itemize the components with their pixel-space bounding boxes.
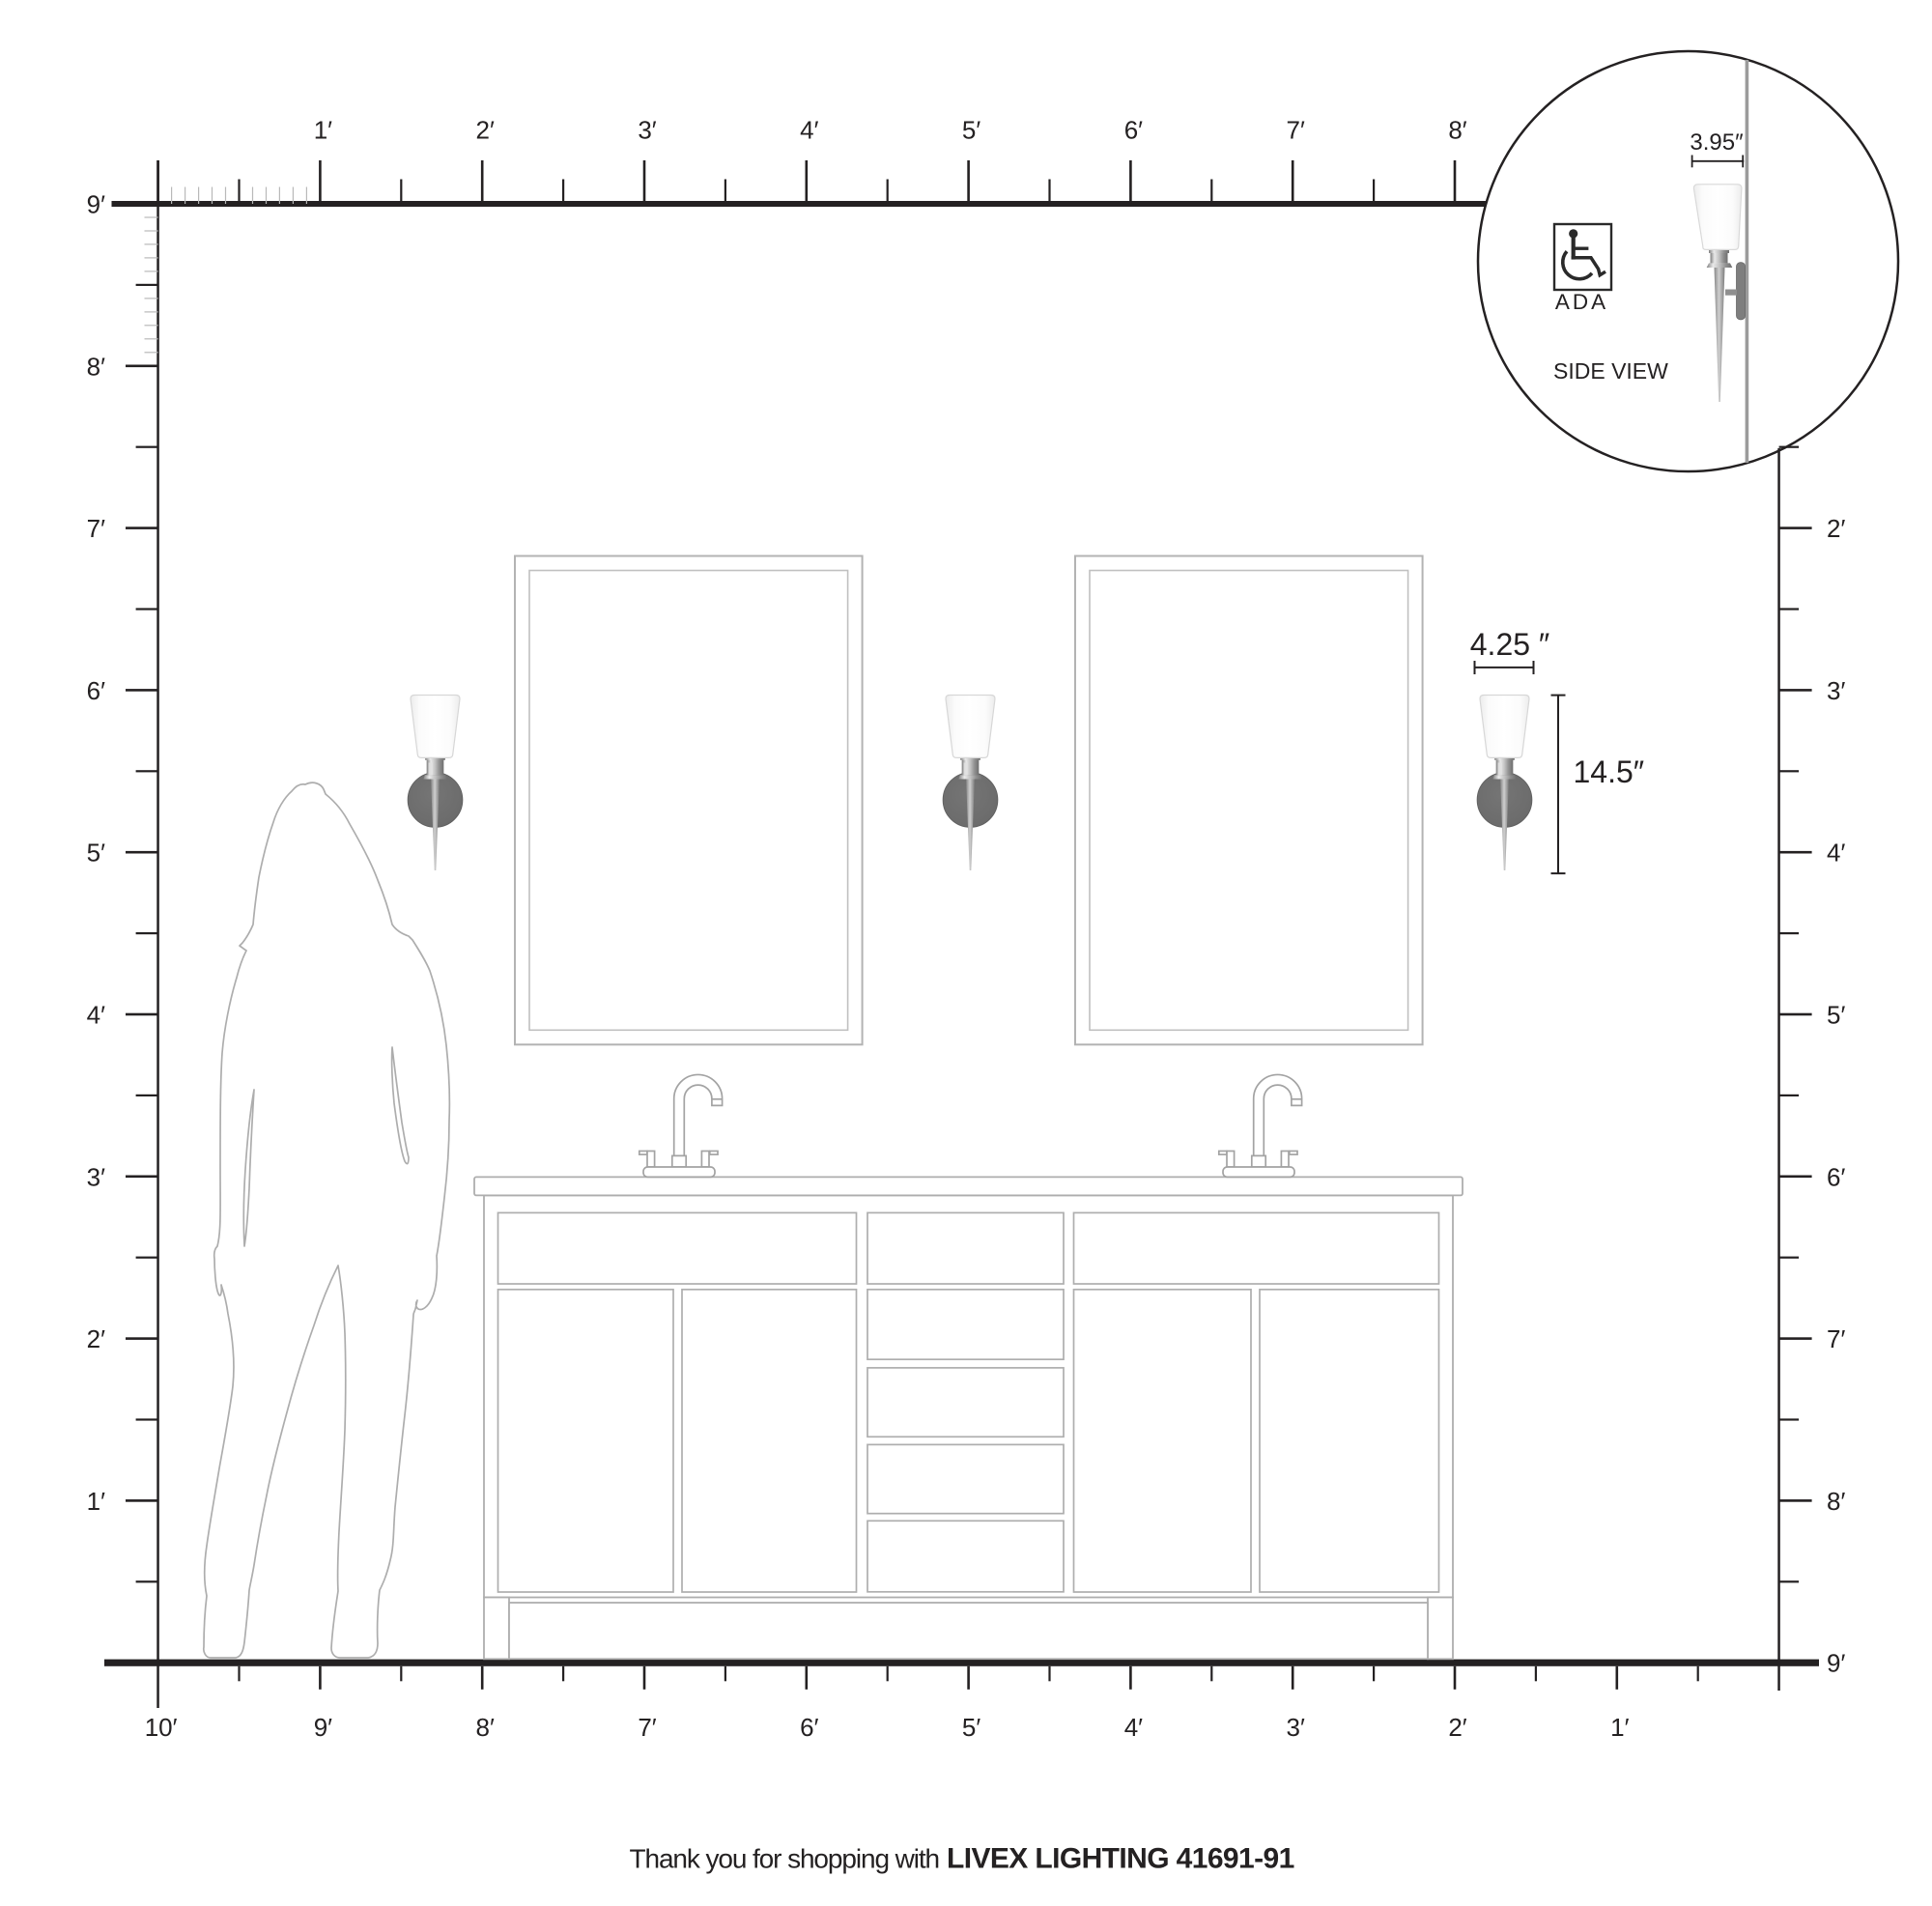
svg-text:4′: 4′ [800, 116, 818, 145]
svg-text:8′: 8′ [1448, 116, 1466, 145]
svg-text:9′: 9′ [1827, 1649, 1845, 1678]
svg-text:7′: 7′ [1827, 1324, 1845, 1353]
svg-text:6′: 6′ [800, 1713, 818, 1742]
svg-text:5′: 5′ [962, 1713, 980, 1742]
svg-text:4′: 4′ [1124, 1713, 1143, 1742]
svg-text:5′: 5′ [962, 116, 980, 145]
svg-text:2′: 2′ [1827, 514, 1845, 543]
svg-text:1′: 1′ [1610, 1713, 1629, 1742]
svg-text:2′: 2′ [476, 116, 495, 145]
svg-text:2′: 2′ [87, 1324, 105, 1353]
svg-text:6′: 6′ [1827, 1162, 1845, 1191]
svg-text:5′: 5′ [87, 839, 105, 868]
svg-text:LIVEX LIGHTING 41691-91: LIVEX LIGHTING 41691-91 [947, 1843, 1294, 1875]
svg-text:4.25 ″: 4.25 ″ [1470, 627, 1550, 662]
svg-text:1′: 1′ [87, 1487, 105, 1516]
svg-text:ADA: ADA [1555, 290, 1608, 314]
svg-text:3′: 3′ [1827, 676, 1845, 705]
svg-text:14.5″: 14.5″ [1574, 754, 1645, 789]
svg-text:8′: 8′ [476, 1713, 495, 1742]
svg-text:10′: 10′ [145, 1713, 178, 1742]
svg-text:SIDE VIEW: SIDE VIEW [1553, 358, 1668, 384]
svg-text:Thank you for shopping with: Thank you for shopping with [629, 1844, 939, 1874]
svg-text:7′: 7′ [1287, 116, 1305, 145]
svg-text:3.95″: 3.95″ [1690, 129, 1744, 156]
svg-text:7′: 7′ [638, 1713, 656, 1742]
svg-text:8′: 8′ [87, 352, 105, 381]
svg-text:5′: 5′ [1827, 1001, 1845, 1030]
svg-text:9′: 9′ [314, 1713, 332, 1742]
svg-text:6′: 6′ [1124, 116, 1143, 145]
svg-text:2′: 2′ [1448, 1713, 1466, 1742]
svg-text:1′: 1′ [314, 116, 332, 145]
svg-text:3′: 3′ [638, 116, 656, 145]
svg-text:8′: 8′ [1827, 1487, 1845, 1516]
svg-text:7′: 7′ [87, 514, 105, 543]
svg-text:6′: 6′ [87, 676, 105, 705]
svg-text:3′: 3′ [1287, 1713, 1305, 1742]
svg-text:3′: 3′ [87, 1162, 105, 1191]
svg-text:9′: 9′ [87, 190, 105, 219]
svg-text:4′: 4′ [1827, 839, 1845, 868]
svg-text:4′: 4′ [87, 1001, 105, 1030]
